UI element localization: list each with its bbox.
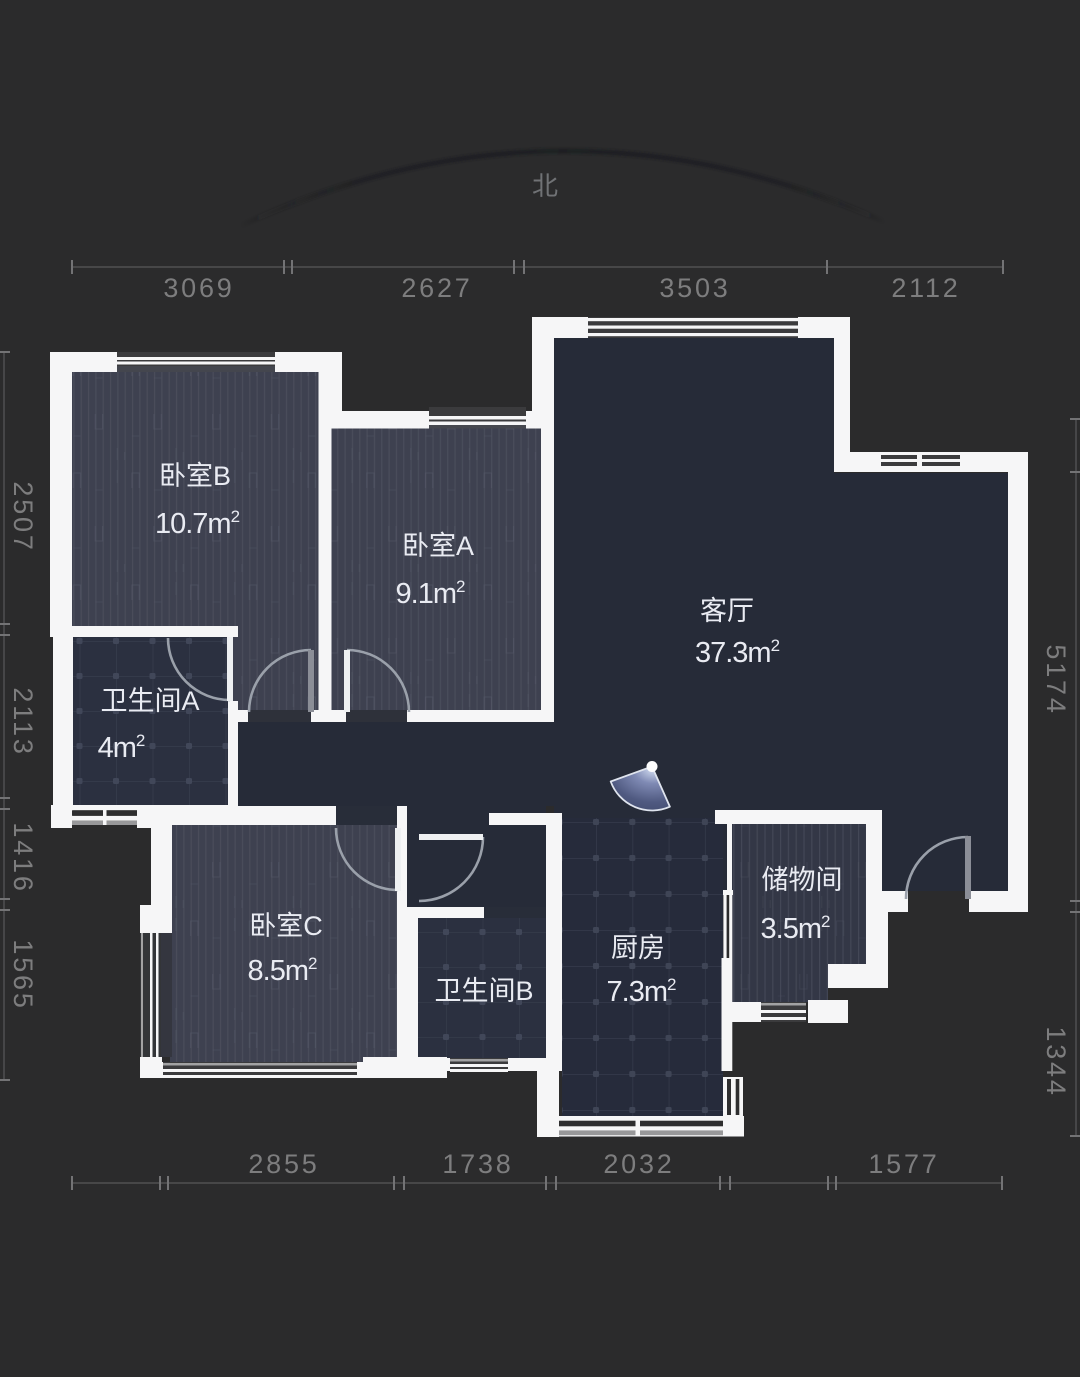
svg-text:2855: 2855 bbox=[248, 1149, 319, 1179]
svg-text:2507: 2507 bbox=[8, 481, 38, 552]
svg-text:卧室A: 卧室A bbox=[402, 531, 474, 561]
svg-text:9.1m2: 9.1m2 bbox=[396, 577, 465, 610]
svg-text:卧室B: 卧室B bbox=[159, 461, 231, 491]
svg-text:10.7m2: 10.7m2 bbox=[155, 507, 240, 540]
svg-text:3069: 3069 bbox=[163, 273, 234, 303]
svg-text:7.3m2: 7.3m2 bbox=[607, 975, 676, 1008]
svg-text:厨房: 厨房 bbox=[611, 933, 665, 963]
svg-text:卫生间A: 卫生间A bbox=[100, 686, 199, 716]
svg-text:3503: 3503 bbox=[659, 273, 730, 303]
svg-text:1738: 1738 bbox=[442, 1149, 513, 1179]
svg-text:2112: 2112 bbox=[891, 273, 960, 303]
svg-text:1344: 1344 bbox=[1041, 1026, 1071, 1097]
svg-text:1416: 1416 bbox=[8, 822, 38, 893]
svg-text:5174: 5174 bbox=[1041, 644, 1071, 715]
svg-text:1577: 1577 bbox=[868, 1149, 939, 1179]
svg-text:卫生间B: 卫生间B bbox=[434, 976, 533, 1006]
svg-text:卧室C: 卧室C bbox=[249, 911, 323, 941]
svg-text:2627: 2627 bbox=[401, 273, 472, 303]
svg-text:北: 北 bbox=[532, 171, 558, 201]
svg-text:客厅: 客厅 bbox=[700, 596, 754, 626]
svg-text:37.3m2: 37.3m2 bbox=[695, 636, 780, 669]
svg-text:储物间: 储物间 bbox=[762, 865, 843, 895]
svg-text:3.5m2: 3.5m2 bbox=[761, 912, 830, 945]
svg-text:2032: 2032 bbox=[603, 1149, 674, 1179]
svg-text:1565: 1565 bbox=[8, 939, 38, 1010]
svg-text:2113: 2113 bbox=[8, 687, 38, 756]
svg-text:8.5m2: 8.5m2 bbox=[248, 954, 317, 987]
